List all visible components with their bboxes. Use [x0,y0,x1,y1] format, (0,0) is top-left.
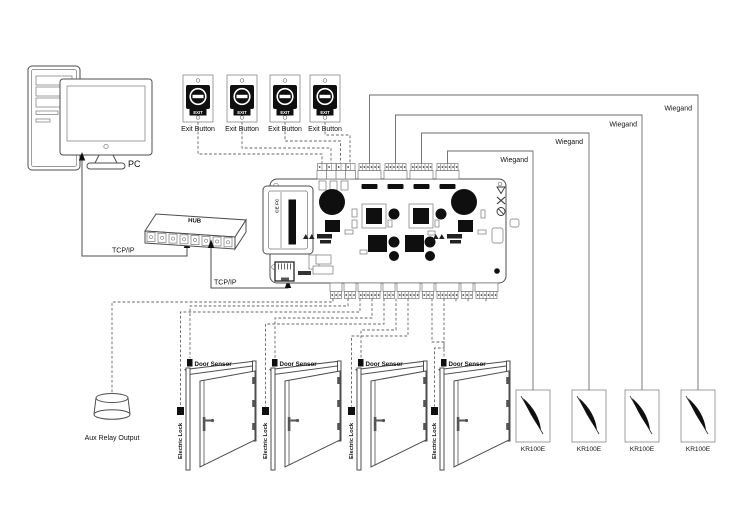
component [341,181,348,190]
hinge [506,377,509,384]
electric-lock-label: Electric Lock [349,422,355,459]
hinge [506,423,509,430]
terminal-block [436,283,459,299]
component [316,255,331,264]
component [313,266,333,274]
terminal-block [383,283,395,299]
component [389,209,400,220]
wiring-diagram: PC TCP/IP HUB TCP/IP [0,0,750,518]
terminal-block [330,283,342,299]
terminal-block-reader4 [436,164,459,180]
reader-label: KR100E [630,446,655,453]
exit-button-label: Exit Button [181,126,215,133]
door-leaf [200,371,255,467]
door-handle [288,417,291,431]
hinge [423,423,426,430]
wiegand-label-4: Wiegand [664,106,692,113]
hub-port [224,238,232,247]
component [389,251,399,261]
door-jamb-left [186,368,190,470]
door-sensor [441,359,447,367]
door-sensor-label: Door Sensor [366,361,404,368]
door2-sensor-wire [275,299,372,359]
terminal-block [475,283,498,299]
reader-label: KR100E [686,446,711,453]
door-leaf [454,371,509,467]
hinge [423,377,426,384]
component [425,251,435,261]
tcpip-label-2: TCP/IP [214,280,237,287]
electric-lock-label: Electric Lock [178,422,184,459]
exit-face-label: EXIT [193,110,203,115]
electric-lock [431,407,438,415]
door-leaf [285,371,340,467]
door-jamb-left [440,368,444,470]
terminal-block-reader2 [384,164,407,180]
door-sensor-label: Door Sensor [195,361,233,368]
terminal-block [336,164,346,180]
terminal-block-reader3 [410,164,433,180]
component [330,181,337,190]
card-slot [289,200,297,245]
cert-marks-label: CE FC [275,198,281,213]
terminal-block [317,164,327,180]
exit-button-label: Exit Button [308,126,342,133]
terminal-block [327,164,337,180]
mcu-chip [409,204,433,228]
pc-monitor-icon [60,79,152,169]
door-3: Door Sensor Electric Lock [348,359,427,470]
terminal-block [346,164,356,180]
hinge [506,400,509,407]
exit-face-label: EXIT [280,110,290,115]
component [436,209,447,220]
door-sensor-label: Door Sensor [449,361,487,368]
terminal-block [422,283,434,299]
electric-lock [177,407,184,415]
exit-face-label: EXIT [237,110,247,115]
door-handle [203,417,206,431]
hinge [252,423,255,430]
hinge [252,400,255,407]
wiegand-label-1: Wiegand [500,157,528,164]
door4-sensor-wire [432,299,444,359]
door-jamb-left [357,368,361,470]
ic-chip [325,220,340,232]
exit-face-label: EXIT [320,110,330,115]
hub-port [202,236,210,245]
electric-lock-label: Electric Lock [263,422,269,459]
relay [368,235,387,252]
aux-relay-label: Aux Relay Output [85,435,140,442]
door-handle [457,417,460,431]
exit-buttons: EXIT Exit Button EXIT Exit Button EXIT E… [181,75,350,164]
door-4: Door Sensor Electric Lock [431,359,510,470]
hinge [337,377,340,384]
exit-button-label: Exit Button [268,126,302,133]
relay [405,235,424,252]
terminal-block-reader1 [358,164,381,180]
ic-chip [458,220,473,232]
door-sensor [272,359,278,367]
hub-label: HUB [188,218,202,225]
tcpip-label-1: TCP/IP [112,248,135,255]
exit-button-label: Exit Button [225,126,259,133]
terminal-block [397,283,420,299]
door-sensor-label: Door Sensor [280,361,318,368]
hinge [252,377,255,384]
hub-port [158,233,166,242]
hinge [337,400,340,407]
door-sensor [358,359,364,367]
terminal-block [358,283,381,299]
electric-lock [348,407,355,415]
door-sensor [187,359,193,367]
capacitor [319,189,345,215]
component [319,181,326,190]
hub-port [191,236,199,245]
terminal-block [461,283,473,299]
door-jamb-left [271,368,275,470]
door-leaf [371,371,426,467]
reader-2: KR100E [572,390,606,453]
network-hub: HUB [145,214,246,249]
hub-port [147,233,155,242]
pc: PC [28,66,152,170]
wiegand-label-2: Wiegand [555,139,583,146]
reader-label: KR100E [521,446,546,453]
door3-sensor-wire [361,299,396,359]
hub-port [213,237,221,246]
component [492,228,503,243]
rj45-connector [275,262,294,281]
wiegand-label-3: Wiegand [609,122,637,129]
capacitor [451,189,477,215]
exit-button-1-wire [198,122,322,164]
reader-1: KR100E [516,390,550,453]
component [298,271,311,275]
controller-cover-plate: CE FC [263,186,313,254]
pc-label: PC [128,159,141,169]
door1-sensor-wire [190,299,348,359]
hinge [423,400,426,407]
hinge [337,423,340,430]
mcu-chip [362,204,386,228]
side-connector [510,219,519,227]
reader-4: KR100E [681,390,715,453]
aux-relay-output: Aux Relay Output [85,394,140,443]
door-1: Door Sensor Electric Lock [177,359,256,470]
hub-port [180,235,188,244]
electric-lock-label: Electric Lock [432,422,438,459]
terminal-block [344,283,356,299]
reader-label: KR100E [577,446,602,453]
hub-port [169,234,177,243]
door-2: Door Sensor Electric Lock [262,359,341,470]
controller-board: CE FC [263,164,506,299]
electric-lock [262,407,269,415]
door-handle [374,417,377,431]
reader-3: KR100E [625,390,659,453]
component [389,237,400,248]
